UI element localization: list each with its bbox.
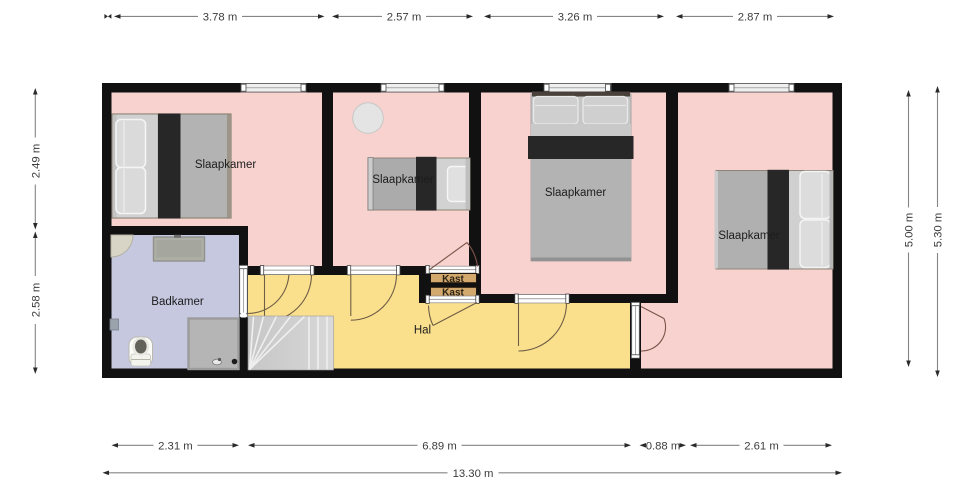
svg-text:0.88 m: 0.88 m <box>646 441 681 453</box>
svg-text:Slaapkamer: Slaapkamer <box>372 174 434 186</box>
svg-text:13.30 m: 13.30 m <box>453 468 494 480</box>
svg-text:2.61 m: 2.61 m <box>744 441 779 453</box>
svg-text:Slaapkamer: Slaapkamer <box>545 187 607 199</box>
svg-text:5.00 m: 5.00 m <box>904 213 916 248</box>
svg-text:Slaapkamer: Slaapkamer <box>718 230 780 242</box>
svg-text:2.31 m: 2.31 m <box>158 441 193 453</box>
svg-text:3.26 m: 3.26 m <box>558 12 593 24</box>
svg-text:6.89 m: 6.89 m <box>422 441 457 453</box>
svg-text:Hal: Hal <box>414 325 431 337</box>
svg-text:Kast: Kast <box>442 288 464 299</box>
svg-text:Badkamer: Badkamer <box>151 296 204 308</box>
svg-text:2.57 m: 2.57 m <box>387 12 422 24</box>
svg-text:2.49 m: 2.49 m <box>30 144 42 179</box>
svg-text:2.87 m: 2.87 m <box>738 12 773 24</box>
svg-text:Kast: Kast <box>442 274 464 285</box>
svg-text:5.30 m: 5.30 m <box>933 213 945 248</box>
svg-text:Slaapkamer: Slaapkamer <box>195 159 257 171</box>
svg-text:3.78 m: 3.78 m <box>203 12 238 24</box>
svg-text:2.58 m: 2.58 m <box>31 283 43 318</box>
